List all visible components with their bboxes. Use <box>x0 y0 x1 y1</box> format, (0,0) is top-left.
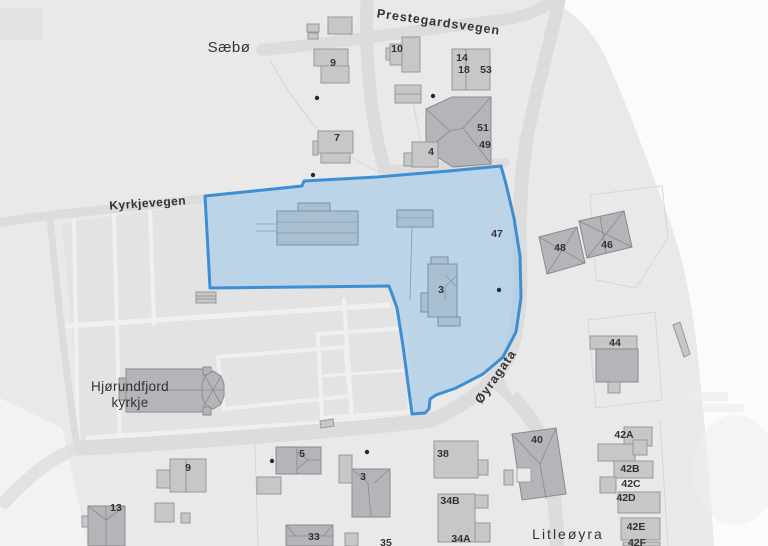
building <box>308 33 318 39</box>
building <box>478 460 488 475</box>
house-number-label: 40 <box>531 434 543 446</box>
house-number-label: 34A <box>451 533 471 545</box>
school-building <box>277 211 358 245</box>
house-number-label: 42E <box>627 521 646 533</box>
house-number-label: 46 <box>601 239 613 251</box>
building <box>404 153 412 166</box>
building <box>339 455 352 483</box>
building <box>600 477 616 493</box>
house-number-label: 3 <box>360 471 366 483</box>
building <box>608 382 620 393</box>
building <box>386 48 390 60</box>
terrain-blob <box>700 404 744 412</box>
poi-dot <box>431 94 435 98</box>
building <box>321 153 350 163</box>
building <box>307 24 319 32</box>
map-viewport: SæbøHjørundfjordkyrkjeLitleøyraPrestegar… <box>0 0 768 546</box>
house-number-label: 18 <box>458 64 470 76</box>
building <box>475 495 488 508</box>
building <box>257 477 281 494</box>
building <box>181 513 190 523</box>
house-number-label: 48 <box>554 242 566 254</box>
map-canvas: SæbøHjørundfjordkyrkjeLitleøyraPrestegar… <box>0 0 768 546</box>
house-number-label: 35 <box>380 537 392 546</box>
house-number-label: 42A <box>614 429 634 441</box>
house-number-label: 51 <box>477 122 489 134</box>
building <box>82 516 88 527</box>
place-label: Sæbø <box>208 39 251 56</box>
house-number-label: 13 <box>110 502 122 514</box>
house-number-label: 9 <box>185 462 191 474</box>
poi-dot <box>365 450 369 454</box>
building <box>421 293 428 312</box>
building <box>402 37 420 72</box>
house-number-label: 44 <box>609 337 621 349</box>
house-number-label: 9 <box>330 57 336 69</box>
house-number-label: 7 <box>334 132 340 144</box>
building <box>196 292 216 303</box>
building <box>397 210 433 227</box>
building <box>475 523 490 542</box>
poi-dot <box>270 459 274 463</box>
poi-dot <box>315 96 319 100</box>
building <box>438 317 460 326</box>
house-number-label: 10 <box>391 43 403 55</box>
place-label: Litleøyra <box>532 526 604 542</box>
building <box>504 470 513 485</box>
terrain-blob <box>688 392 728 401</box>
house-number-label: 49 <box>479 139 491 151</box>
house-number-label: 38 <box>437 448 449 460</box>
house-number-label: 42B <box>620 463 640 475</box>
house-number-label: 42F <box>628 537 647 546</box>
terrain-patch <box>0 8 42 40</box>
building <box>203 407 211 415</box>
building <box>155 503 174 522</box>
building <box>328 17 352 34</box>
building <box>633 440 647 455</box>
house-number-label: 5 <box>299 448 305 460</box>
building <box>313 141 318 155</box>
building <box>320 419 334 428</box>
building <box>157 470 170 488</box>
house-number-label: 53 <box>480 64 492 76</box>
building <box>412 142 438 167</box>
building <box>345 533 358 546</box>
building <box>598 444 635 461</box>
building <box>431 257 448 264</box>
house-number-label: 33 <box>308 531 320 543</box>
house-number-label: 34B <box>440 495 460 507</box>
house-number-label: 3 <box>438 284 444 296</box>
building <box>596 349 638 382</box>
house-number-label: 47 <box>491 228 503 240</box>
building-courtyard <box>517 468 531 482</box>
house-number-label: 42D <box>616 492 636 504</box>
house-number-label: 42C <box>621 478 641 490</box>
house-number-label: 14 <box>456 52 468 64</box>
building <box>352 469 390 517</box>
poi-dot <box>497 288 501 292</box>
house-number-label: 4 <box>428 146 434 158</box>
poi-dot <box>311 173 315 177</box>
